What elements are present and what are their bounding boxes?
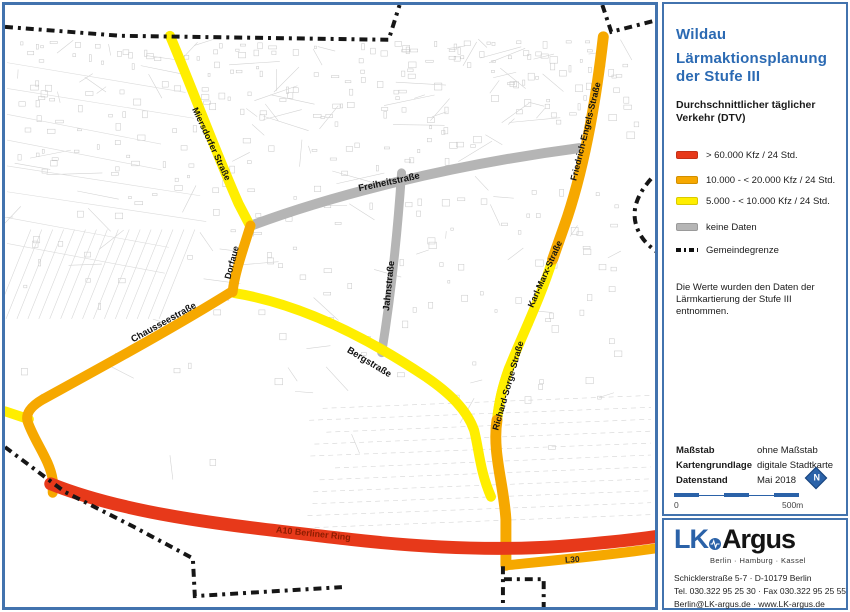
meta-label: Kartengrundlage [676,460,752,471]
scale-max-label: 500m [782,500,803,510]
scale-zero-label: 0 [674,500,679,510]
scale-bar-segment [724,493,749,497]
street-label: Richard-Sorge-Straße [490,340,525,432]
map-canvas: FreiheitstraßeJahnstraßeMiersdorfer Stra… [5,5,655,607]
legend-label: 5.000 - < 10.000 Kfz / 24 Std. [706,196,830,207]
legend-item: 5.000 - < 10.000 Kfz / 24 Std. [676,196,846,208]
street-label: Karl-Marx-Straße [526,239,564,309]
legend-label: keine Daten [706,222,757,233]
legend-note: Die Werte wurden den Daten der Lärmkarti… [676,282,838,318]
scale-bar [674,493,799,497]
logo-lk-text: LK [674,524,708,554]
legend-heading: Durchschnittlicher täglicher Verkehr (DT… [676,99,836,124]
legend-label: > 60.000 Kfz / 24 Std. [706,150,798,161]
address-line2: Tel. 030.322 95 25 30 · Fax 030.322 95 2… [674,586,846,596]
municipal-boundary-line [635,179,655,252]
logo-pulse-icon [709,537,721,555]
logo-argus-text: Argus [722,524,795,554]
map-title-line3: der Stufe III [676,68,760,85]
company-logo: LKArgus [674,524,795,555]
boundary-line-swatch [676,248,698,252]
meta-row: DatenstandMai 2018 [676,475,728,488]
address-line1: Schicklerstraße 5-7 · D-10179 Berlin [674,573,811,583]
north-label: N [810,472,824,482]
street-label: L30 [565,554,581,565]
road-freiheitstra-e [251,148,579,225]
legend-items: > 60.000 Kfz / 24 Std.10.000 - < 20.000 … [676,150,846,265]
legend-label: 10.000 - < 20.000 Kfz / 24 Std. [706,175,835,186]
logo-cities: Berlin · Hamburg · Kassel [710,556,806,565]
legend-label: Gemeindegrenze [706,245,779,256]
meta-label: Maßstab [676,445,715,456]
address-line3: Berlin@LK-argus.de · www.LK-argus.de [674,599,825,609]
municipal-boundary-line [5,5,400,40]
road-chausseestra-e [27,291,232,493]
road-a10-berliner-ring [51,484,655,549]
road-color-swatch [676,151,698,159]
road-color-swatch [676,176,698,184]
road-bergstra-e [235,293,491,497]
map-title-line2: Lärmaktionsplanung [676,50,827,67]
logo-panel: LKArgus Berlin · Hamburg · Kassel Schick… [662,518,848,610]
meta-value: digitale Stadtkarte [757,460,833,471]
municipal-boundary-line [602,5,654,32]
legend-panel: Wildau Lärmaktionsplanung der Stufe III … [662,2,848,516]
page: FreiheitstraßeJahnstraßeMiersdorfer Stra… [0,0,850,612]
road-color-swatch [676,223,698,231]
meta-rows: Maßstabohne MaßstabKartengrundlagedigita… [676,445,846,493]
meta-row: Maßstabohne Maßstab [676,445,715,458]
meta-value: ohne Maßstab [757,445,818,456]
legend-item: keine Daten [676,222,846,234]
street-label: Freiheitstraße [357,170,420,194]
street-label: Miersdorfer Straße [190,106,233,182]
meta-row: Kartengrundlagedigitale Stadtkarte [676,460,752,473]
legend-item: 10.000 - < 20.000 Kfz / 24 Std. [676,175,846,187]
municipal-boundary-line [504,579,544,607]
scale-bar-segment [774,493,799,497]
meta-label: Datenstand [676,475,728,486]
legend-item: > 60.000 Kfz / 24 Std. [676,150,846,162]
road-color-swatch [676,197,698,205]
meta-value: Mai 2018 [757,475,796,486]
legend-item: Gemeindegrenze [676,245,846,257]
map-panel: FreiheitstraßeJahnstraßeMiersdorfer Stra… [2,2,658,610]
scale-bar-segment [674,493,699,497]
map-title-line1: Wildau [676,26,726,43]
